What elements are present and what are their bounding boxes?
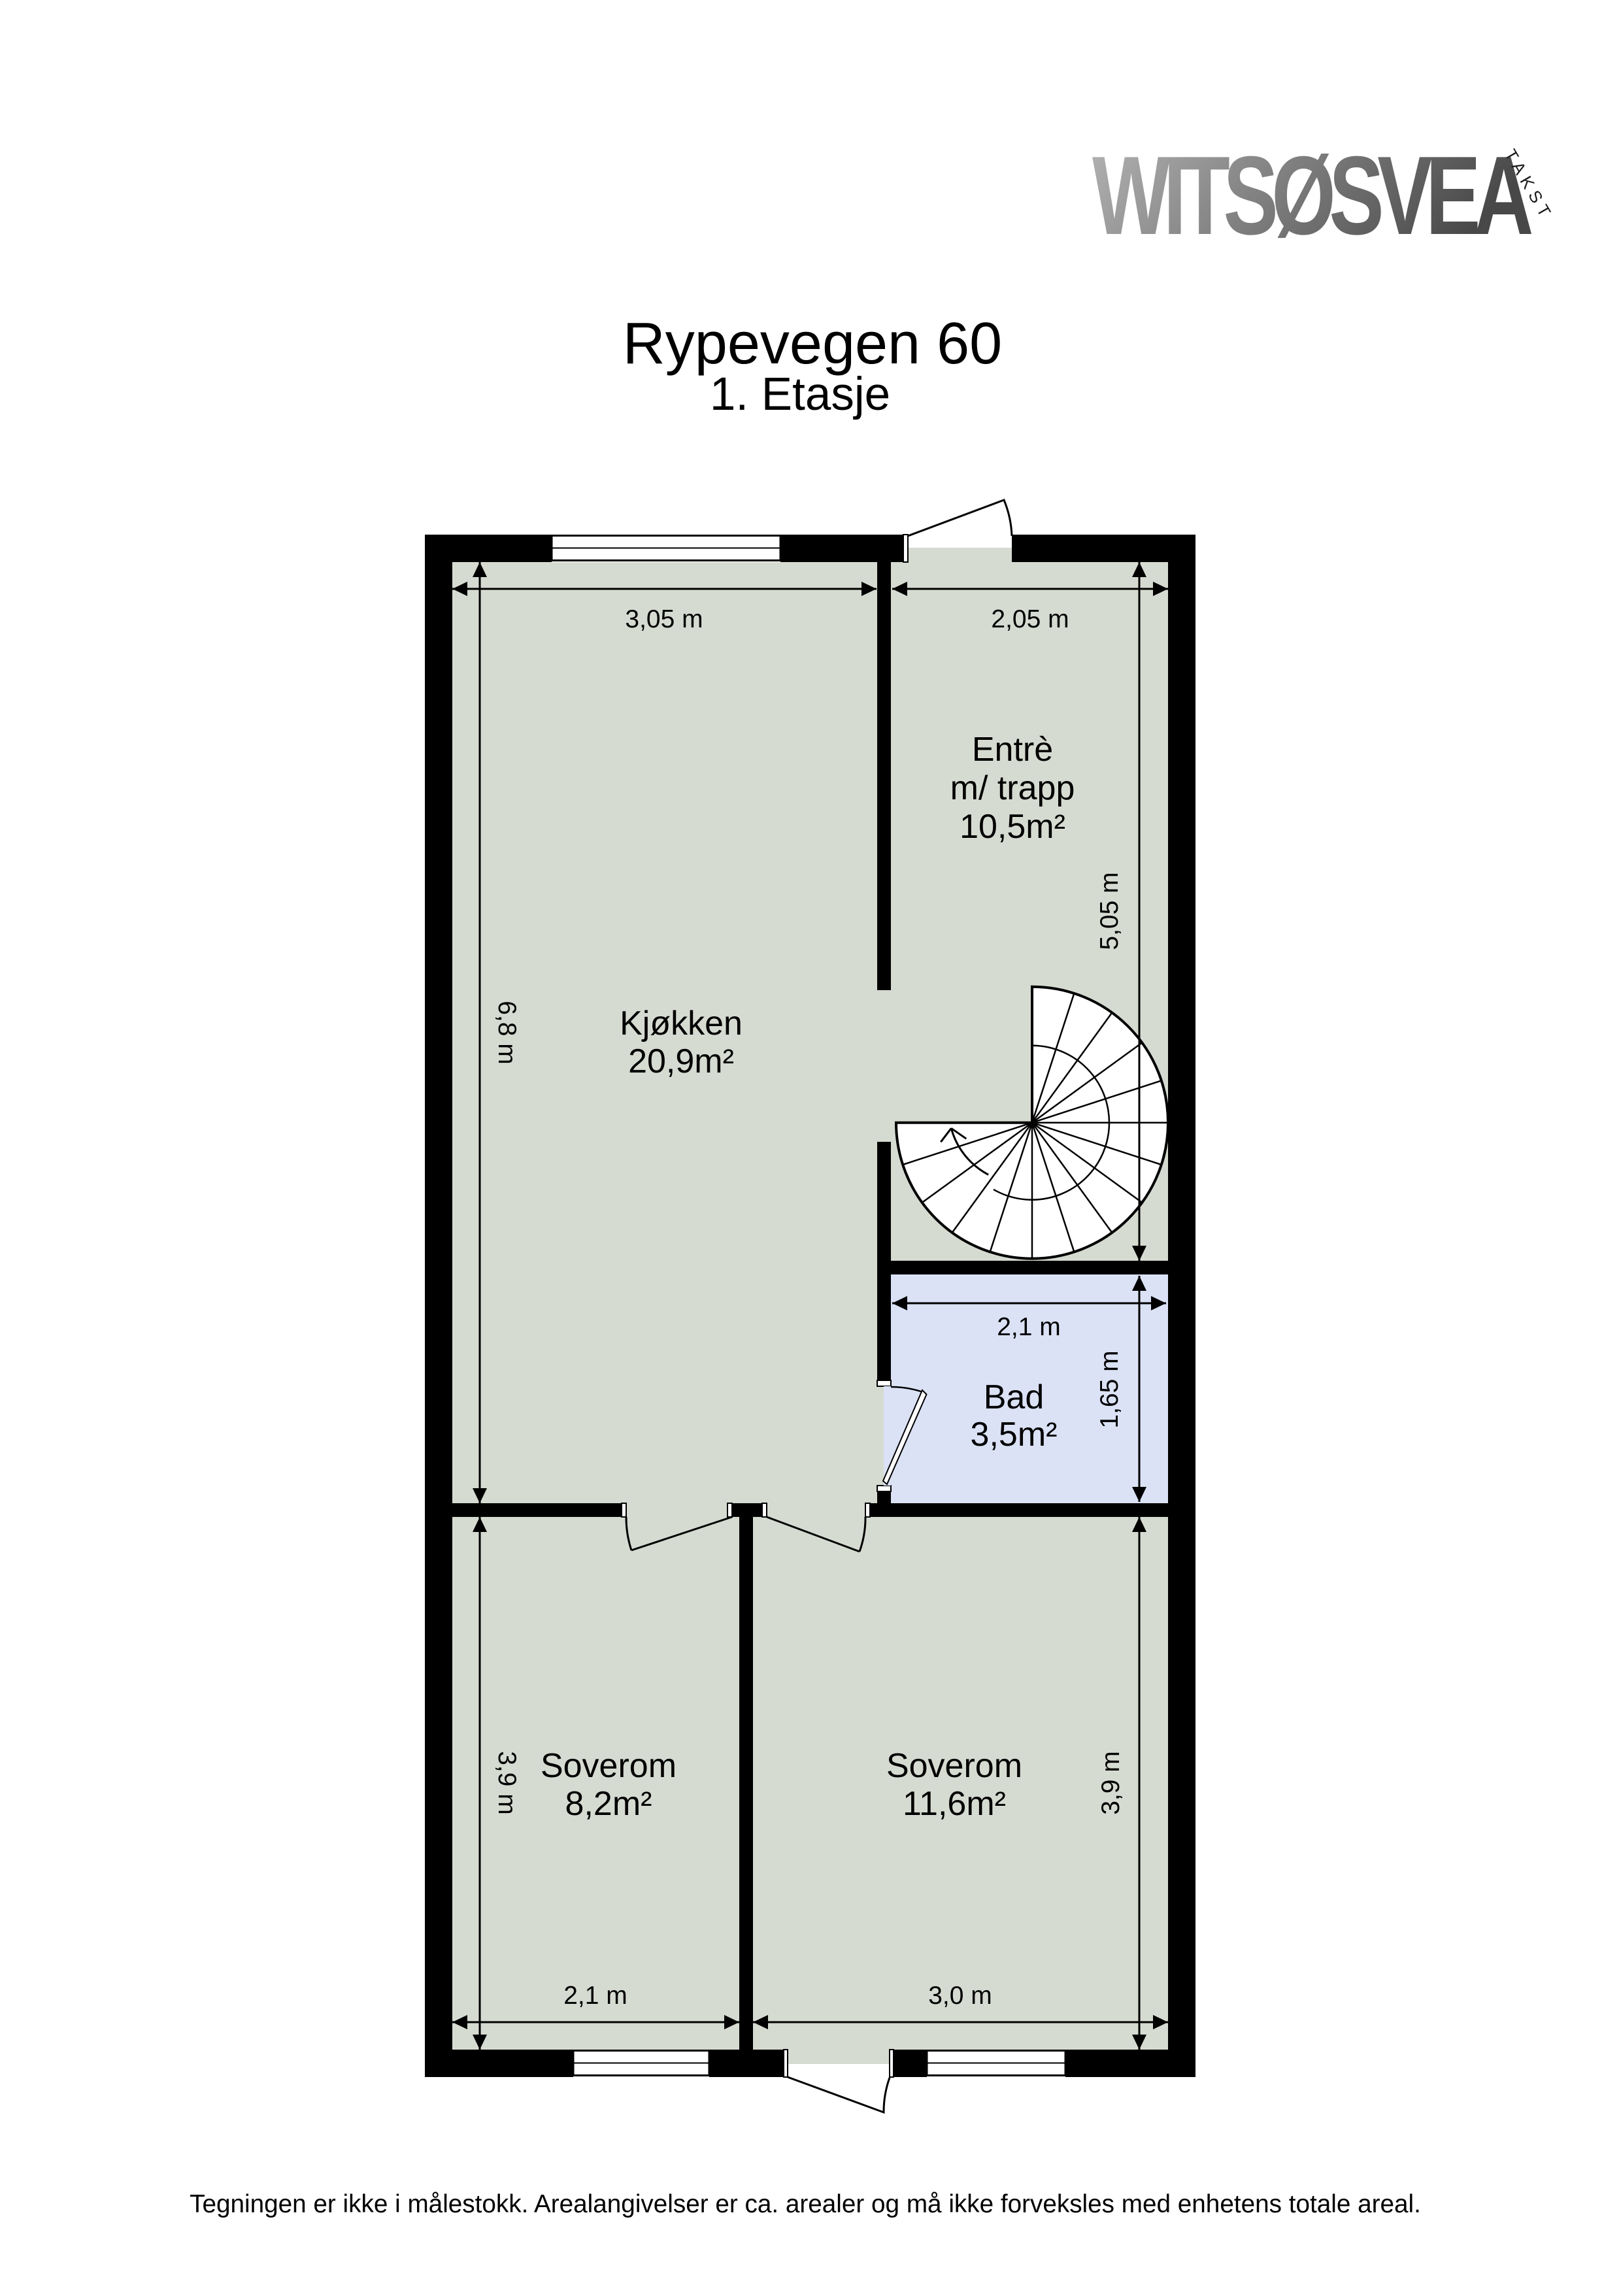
svg-text:1,65 m: 1,65 m xyxy=(1095,1350,1124,1428)
svg-text:3,9 m: 3,9 m xyxy=(1097,1751,1125,1815)
svg-text:Bad: Bad xyxy=(984,1378,1044,1416)
svg-text:WITSØSVEA: WITSØSVEA xyxy=(1092,133,1531,258)
svg-text:5,05 m: 5,05 m xyxy=(1095,872,1124,950)
svg-text:Tegningen er ikke i målestokk.: Tegningen er ikke i målestokk. Arealangi… xyxy=(190,2190,1421,2218)
svg-text:Entrè: Entrè xyxy=(972,731,1053,769)
svg-text:20,9m²: 20,9m² xyxy=(628,1042,734,1080)
svg-text:2,05 m: 2,05 m xyxy=(991,605,1069,633)
svg-text:Soverom: Soverom xyxy=(541,1747,677,1785)
svg-text:m/ trapp: m/ trapp xyxy=(950,769,1075,807)
svg-text:2,1 m: 2,1 m xyxy=(997,1313,1061,1341)
svg-text:Rypevegen 60: Rypevegen 60 xyxy=(623,311,1002,376)
svg-text:2,1 m: 2,1 m xyxy=(563,1982,627,2010)
svg-text:10,5m²: 10,5m² xyxy=(960,808,1065,846)
svg-text:3,05 m: 3,05 m xyxy=(625,605,703,633)
svg-text:3,0 m: 3,0 m xyxy=(928,1982,992,2010)
svg-text:3,9 m: 3,9 m xyxy=(493,1751,521,1815)
svg-text:11,6m²: 11,6m² xyxy=(903,1785,1006,1823)
svg-text:3,5m²: 3,5m² xyxy=(971,1416,1058,1454)
svg-text:8,2m²: 8,2m² xyxy=(565,1785,652,1823)
svg-text:Soverom: Soverom xyxy=(886,1747,1022,1785)
svg-text:Kjøkken: Kjøkken xyxy=(620,1005,743,1042)
svg-text:6,8 m: 6,8 m xyxy=(493,1001,521,1065)
svg-text:1. Etasje: 1. Etasje xyxy=(710,369,890,420)
